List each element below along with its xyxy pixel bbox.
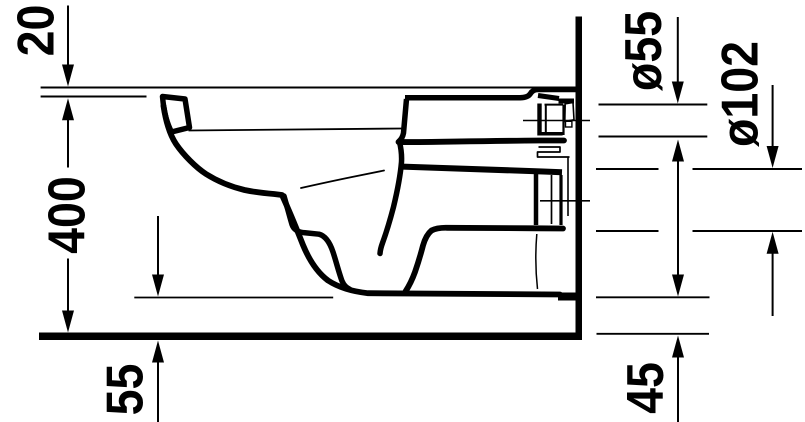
svg-text:20: 20: [7, 5, 65, 57]
svg-text:400: 400: [38, 176, 96, 254]
svg-text:ø55: ø55: [615, 11, 673, 91]
svg-text:ø102: ø102: [711, 41, 769, 147]
svg-text:55: 55: [96, 364, 154, 416]
svg-text:45: 45: [617, 362, 675, 414]
